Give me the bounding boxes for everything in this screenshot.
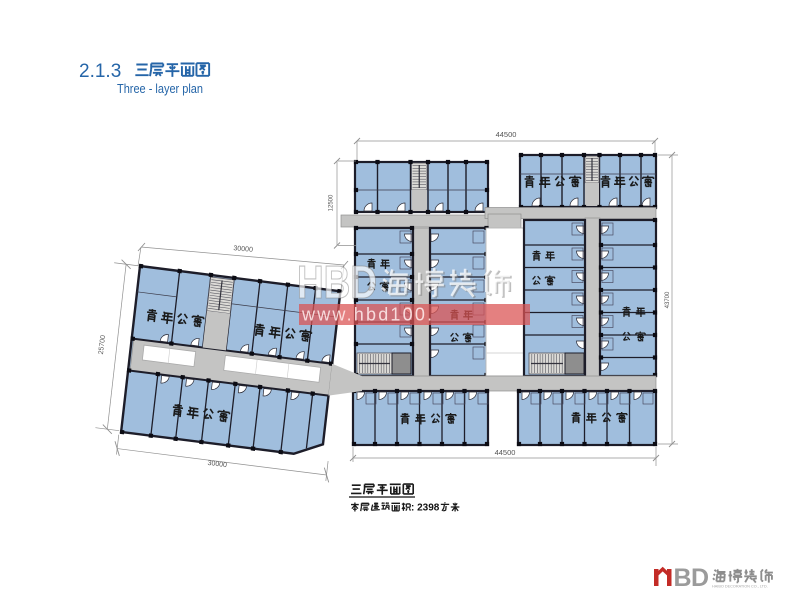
svg-text:44500: 44500: [496, 130, 517, 139]
svg-text:BD: BD: [674, 564, 709, 592]
svg-text:: 2398: : 2398: [411, 503, 440, 514]
svg-text:12500: 12500: [329, 194, 335, 211]
svg-text:Three - layer plan: Three - layer plan: [117, 81, 203, 96]
svg-text:HBD: HBD: [297, 256, 377, 308]
svg-text:44500: 44500: [495, 448, 516, 457]
svg-text:43700: 43700: [665, 291, 671, 308]
svg-text:HAIBO DECORATION CO., LTD.: HAIBO DECORATION CO., LTD.: [712, 585, 768, 589]
svg-text:www.hbd100.: www.hbd100.: [301, 305, 434, 325]
svg-text:2.1.3: 2.1.3: [79, 61, 121, 82]
